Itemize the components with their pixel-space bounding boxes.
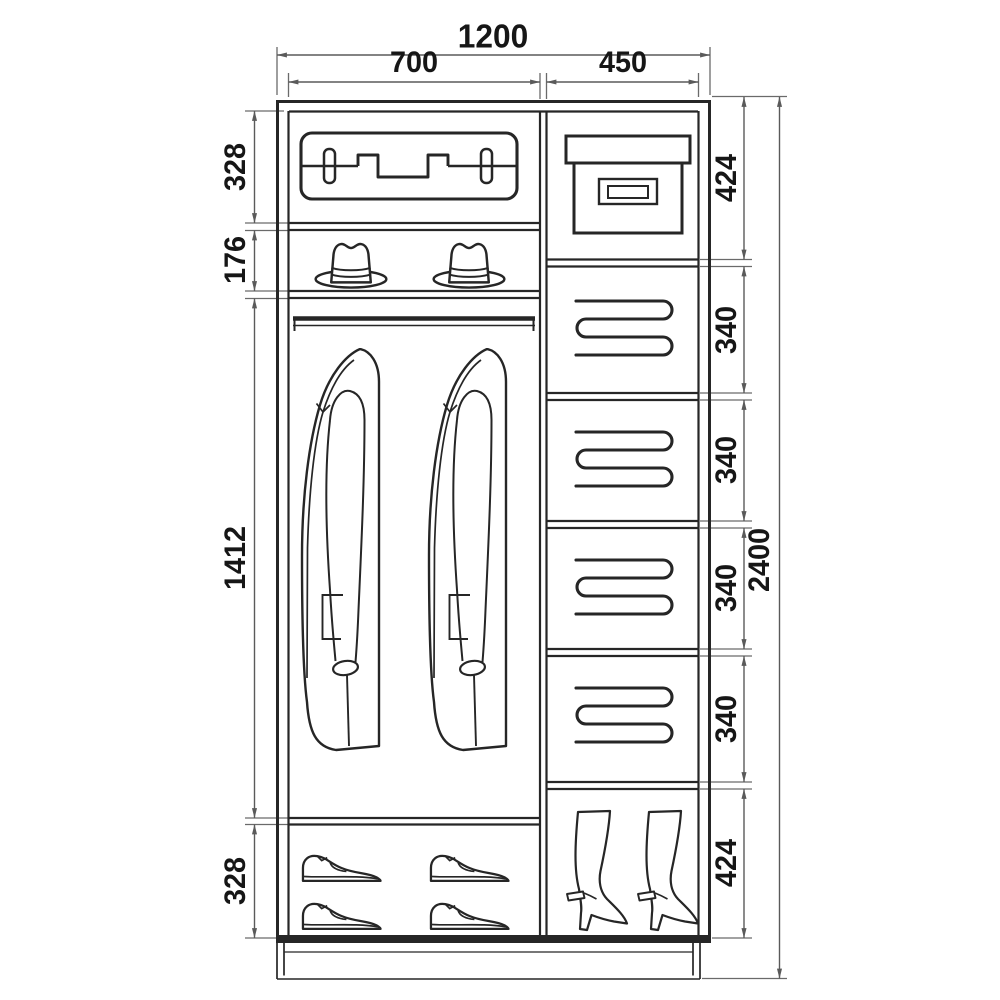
dim-label-right-chain-0: 424	[712, 154, 742, 202]
shoe-icon	[303, 856, 381, 881]
folded-linen-icon	[576, 301, 672, 355]
dim-label-right-chain-2: 340	[712, 436, 742, 484]
coat-icon	[429, 349, 506, 750]
hanging-rod	[293, 318, 535, 331]
suitcase-icon	[301, 133, 517, 199]
right-shelves	[547, 260, 699, 790]
dim-label-overall-width: 1200	[458, 20, 528, 53]
dim-label-right-chain-4: 340	[712, 695, 742, 743]
shoe-icon	[431, 856, 509, 881]
dim-label-right-chain-1: 340	[712, 306, 742, 354]
storage-box-icon	[566, 136, 690, 233]
dim-label-right-chain-3: 340	[712, 564, 742, 612]
shoe-icon	[303, 904, 381, 929]
dim-label-left-width: 700	[390, 48, 438, 78]
drawing-linework	[0, 0, 1000, 1000]
hat-icon	[316, 244, 387, 288]
dim-label-overall-height: 2400	[745, 528, 775, 592]
folded-linen-icon	[576, 688, 672, 742]
dim-label-left-chain-2: 1412	[221, 526, 251, 590]
dim-label-right-chain-5: 424	[712, 839, 742, 887]
dim-label-left-chain-0: 328	[221, 143, 251, 191]
dim-label-left-chain-3: 328	[221, 857, 251, 905]
boot-icon	[638, 811, 698, 930]
wardrobe-dimension-drawing: 1200 700 450 328 176 1412 328 424 340 34…	[0, 0, 1000, 1000]
folded-linen-icon	[576, 560, 672, 614]
dim-label-left-chain-1: 176	[221, 236, 251, 284]
content-icons	[301, 133, 698, 930]
plinth	[277, 942, 700, 979]
coat-icon	[302, 349, 379, 750]
folded-linen-icon	[576, 432, 672, 486]
dim-label-right-width: 450	[599, 48, 647, 78]
boot-icon	[567, 811, 627, 930]
hat-icon	[434, 244, 505, 288]
shoe-icon	[431, 904, 509, 929]
